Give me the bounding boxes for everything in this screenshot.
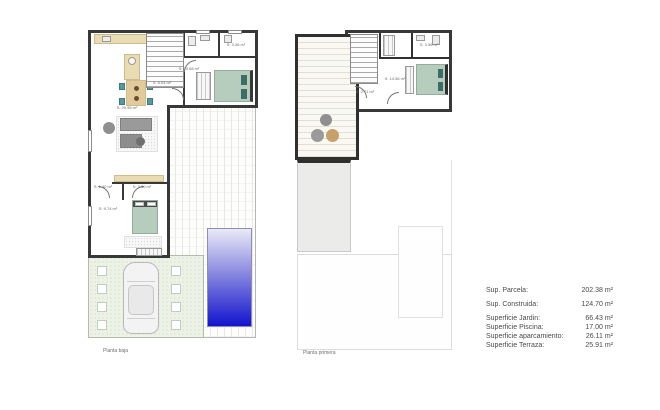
island-sink-icon <box>128 57 136 65</box>
summary-row-parcela: Sup. Parcela: 202.38 m² <box>486 286 613 295</box>
room-area-label: S: 9.74 m² <box>94 206 122 211</box>
car-rear-window <box>127 318 155 319</box>
sink-icon <box>102 36 111 42</box>
summary-row-terraza: Superficie Terraza: 25.91 m² <box>486 341 613 350</box>
wall <box>183 56 255 58</box>
wall <box>167 105 258 108</box>
pillow-icon <box>438 69 443 78</box>
wall <box>379 57 450 59</box>
summary-row-piscina: Superficie Piscina: 17.00 m² <box>486 323 613 332</box>
room-area-label: S: 14.56 m² <box>380 76 410 81</box>
car-top-view <box>123 262 159 334</box>
summary-value: 25.91 m² <box>585 341 613 350</box>
room-area-label: S: 3.36 m² <box>414 42 444 47</box>
paver <box>97 320 107 330</box>
paver <box>97 302 107 312</box>
pillow-icon <box>438 82 443 91</box>
pillow-icon <box>241 89 247 99</box>
window <box>196 30 210 34</box>
pillow-icon <box>241 75 247 85</box>
summary-row-construida: Sup. Construida: 124.70 m² <box>486 300 613 309</box>
summary-value: 66.43 m² <box>585 314 613 323</box>
plate-icon <box>134 86 139 91</box>
garden-parking <box>88 255 204 338</box>
chair-icon <box>147 98 153 105</box>
toilet-icon <box>188 36 196 46</box>
wall <box>255 30 258 108</box>
wall <box>411 33 413 58</box>
room-area-label: S: 1.40 m² <box>90 184 116 189</box>
paver <box>97 284 107 294</box>
room-area-label: S: 10.68 m² <box>174 66 204 71</box>
room-area-label: S: 29.96 m² <box>112 105 142 110</box>
plot-edge-line <box>451 160 452 254</box>
staircase <box>350 34 378 84</box>
summary-label: Superficie Jardin: <box>486 314 540 323</box>
floor-plan-sheet: S: 29.96 m² S: 5.04 m² S: 3.36 m² S: 10.… <box>0 0 660 410</box>
summary-row-aparcamiento: Superficie aparcamiento: 26.11 m² <box>486 332 613 341</box>
window <box>228 30 242 34</box>
paver <box>171 320 181 330</box>
armchair-icon <box>103 122 115 134</box>
rug <box>124 236 162 248</box>
chair-icon <box>119 98 125 105</box>
vanity-counter <box>114 175 164 182</box>
sink-icon <box>416 35 425 41</box>
summary-label: Superficie aparcamiento: <box>486 332 563 341</box>
dining-table <box>126 80 146 106</box>
summary-label: Sup. Construida: <box>486 300 538 309</box>
coffee-table-icon <box>136 137 145 146</box>
sofa <box>120 118 152 131</box>
summary-value: 124.70 m² <box>581 300 613 309</box>
wall <box>379 33 381 58</box>
sink-icon <box>200 35 210 41</box>
lower-garden-slab <box>297 160 351 252</box>
summary-value: 26.11 m² <box>586 332 613 341</box>
paver <box>97 266 107 276</box>
summary-label: Superficie Terraza: <box>486 341 544 350</box>
summary-row-jardin: Superficie Jardin: 66.43 m² <box>486 314 613 323</box>
summary-value: 17.00 m² <box>585 323 613 332</box>
paver <box>171 266 181 276</box>
car-windshield <box>127 281 155 282</box>
room-area-label: S: 2.71 m² <box>351 89 379 94</box>
summary-label: Superficie Piscina: <box>486 323 544 332</box>
wall <box>218 33 220 58</box>
plan-caption-first: Planta primera <box>303 350 336 356</box>
room-area-label: S: 3.36 m² <box>221 42 251 47</box>
wardrobe <box>196 72 211 100</box>
pillow-icon <box>147 202 156 206</box>
floor-plan-first: S: 3.36 m² S: 14.56 m² S: 2.71 m² <box>295 30 455 350</box>
car-cabin <box>128 285 154 315</box>
window <box>88 206 92 226</box>
pouf-icon <box>320 114 332 126</box>
pouf-icon <box>311 129 324 142</box>
bed <box>416 64 448 95</box>
pool-outline <box>398 226 443 318</box>
paver <box>171 284 181 294</box>
plate-icon <box>134 96 139 101</box>
pillow-icon <box>135 202 144 206</box>
paver <box>171 302 181 312</box>
room-area-label: S: 3.50 m² <box>128 184 156 189</box>
swimming-pool <box>207 228 252 327</box>
summary-value: 202.38 m² <box>581 286 613 295</box>
summary-panel: Sup. Parcela: 202.38 m² Sup. Construida:… <box>486 286 613 350</box>
plan-caption-ground: Planta baja <box>103 348 128 354</box>
room-area-label: S: 5.04 m² <box>148 80 176 85</box>
chair-icon <box>119 83 125 90</box>
window <box>88 130 92 152</box>
pouf-icon <box>326 129 339 142</box>
summary-label: Sup. Parcela: <box>486 286 528 295</box>
floor-plan-ground: S: 29.96 m² S: 5.04 m² S: 3.36 m² S: 10.… <box>88 30 258 340</box>
wall <box>122 182 124 200</box>
bed <box>132 200 158 234</box>
storage-unit <box>136 248 162 256</box>
wardrobe <box>383 35 395 56</box>
bed <box>214 70 253 102</box>
